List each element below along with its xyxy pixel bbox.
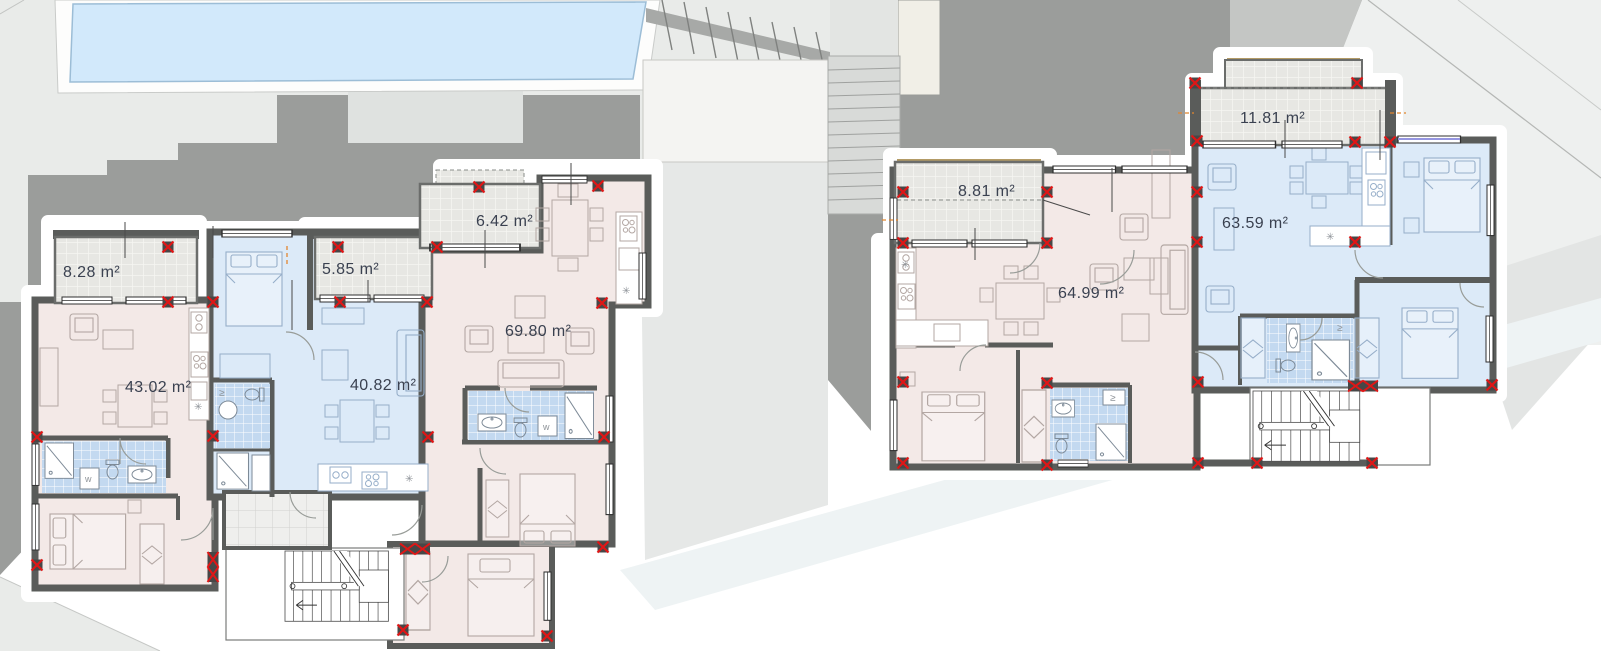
- area-label-terrace-11-81: 11.81 m²: [1240, 110, 1305, 127]
- rail-symbol: ≥: [219, 388, 225, 399]
- vent-symbol: ✳: [1326, 232, 1334, 243]
- pool-water: [70, 2, 646, 82]
- area-label-terrace-5-85: 5.85 m²: [322, 261, 379, 278]
- entrance-corridor: [224, 492, 330, 548]
- rail-symbol: ≥: [1110, 393, 1116, 404]
- stair-landing-panel: [643, 60, 830, 162]
- area-label-terrace-8-28: 8.28 m²: [63, 264, 120, 281]
- pool: [55, 0, 660, 93]
- area-label-unit-64-99: 64.99 m²: [1058, 285, 1125, 302]
- staircase-left: [285, 551, 388, 621]
- terrain-step-light: [348, 91, 523, 143]
- site-plan-drawing: w w ≥ ✳ ✳: [0, 0, 1601, 651]
- vent-symbol: ✳: [622, 286, 630, 297]
- terrace-8-81: [895, 162, 1043, 243]
- terrace-11-81-upper: [1225, 60, 1362, 88]
- floor-plan-canvas: w w ≥ ✳ ✳: [0, 0, 1601, 651]
- area-label-unit-63-59: 63.59 m²: [1222, 215, 1289, 232]
- vent-symbol: ✳: [405, 474, 413, 485]
- rail-symbol: ≥: [1337, 323, 1343, 334]
- area-label-terrace-8-81: 8.81 m²: [958, 183, 1015, 200]
- area-label-unit-40-82: 40.82 m²: [350, 377, 417, 394]
- left-building: w w ≥ ✳ ✳: [28, 163, 656, 651]
- staircase-right: [1253, 391, 1360, 461]
- vent-symbol: ✳: [901, 260, 909, 271]
- terrain-courtyard: [640, 160, 828, 560]
- washer-label: w: [84, 474, 92, 484]
- vent-symbol: ✳: [194, 402, 202, 413]
- area-label-terrace-6-42: 6.42 m²: [476, 213, 533, 230]
- area-label-unit-69-80: 69.80 m²: [505, 323, 572, 340]
- area-label-unit-43-02: 43.02 m²: [125, 379, 192, 396]
- washer-label: w: [542, 422, 550, 432]
